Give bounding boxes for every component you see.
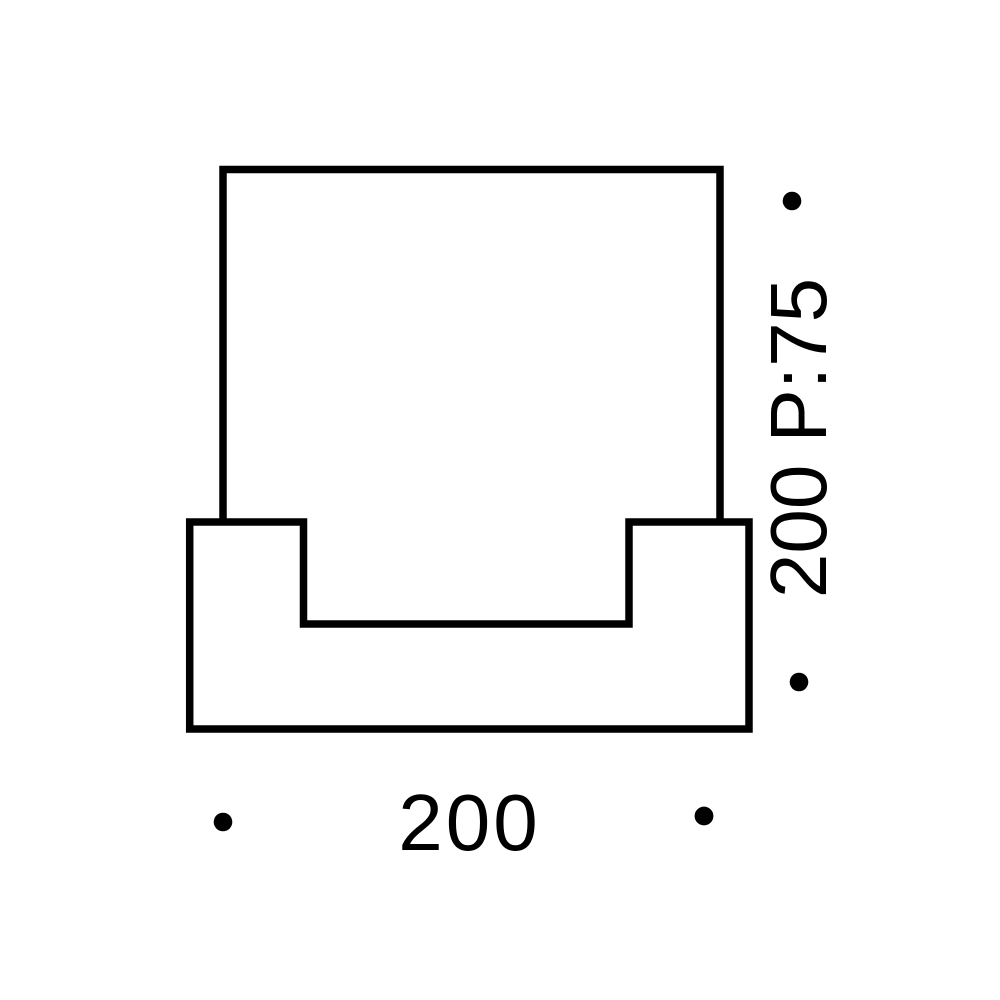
svg-text:200: 200 xyxy=(398,778,540,867)
svg-text:200 P:75: 200 P:75 xyxy=(754,278,843,598)
